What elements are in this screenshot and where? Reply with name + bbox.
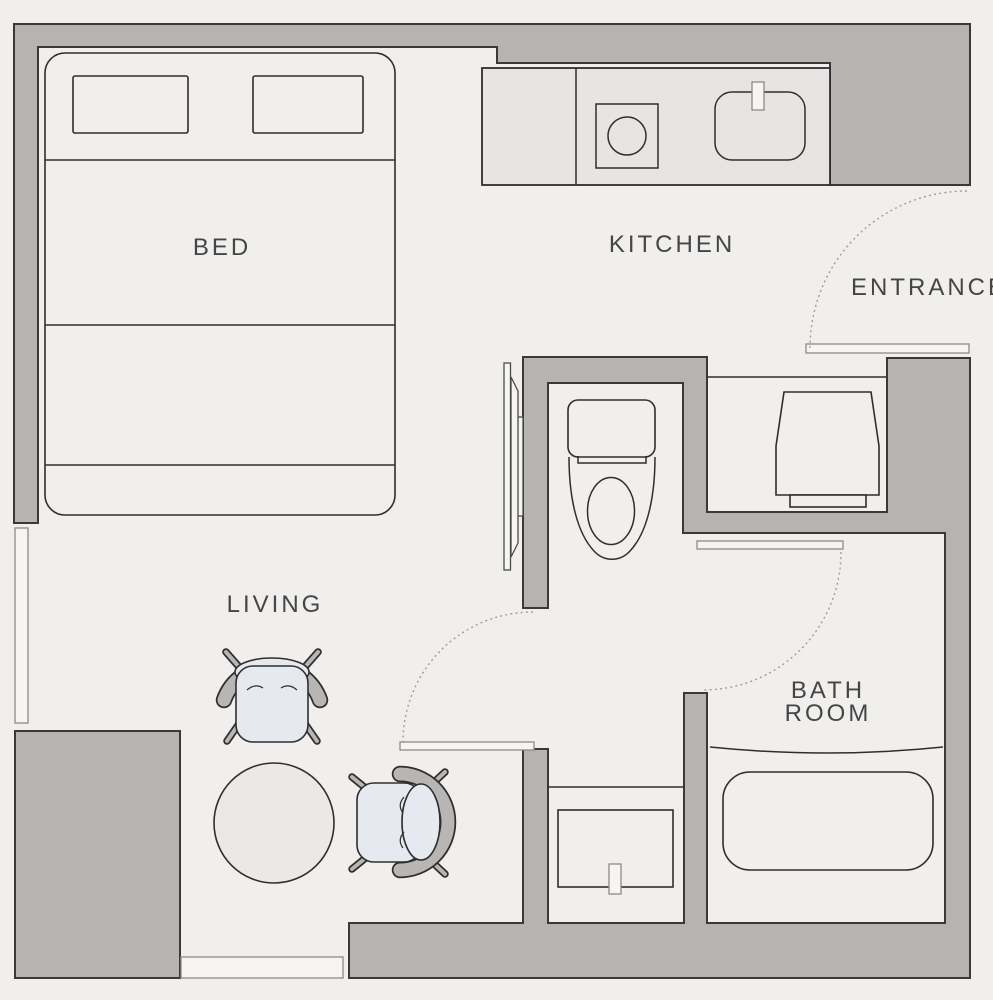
pillow-right xyxy=(253,76,363,133)
bed-group xyxy=(45,53,395,515)
washing-machine-group xyxy=(776,392,879,507)
sink-faucet xyxy=(752,82,764,110)
toilet-tank xyxy=(568,400,655,457)
kitchen-label: KITCHEN xyxy=(609,231,735,258)
washbasin-faucet xyxy=(609,864,621,894)
bathroom-label-line2: ROOM xyxy=(785,700,872,727)
stove-burner xyxy=(608,117,646,155)
sliding-door-panel-rear xyxy=(511,377,518,557)
window-bottom xyxy=(181,957,343,978)
entrance-label: ENTRANCE xyxy=(851,274,993,301)
armchair-top xyxy=(224,652,320,742)
armchair-right xyxy=(352,772,448,874)
living-label: LIVING xyxy=(227,591,324,618)
hall-door-sill xyxy=(400,742,534,750)
armchair-top-seat xyxy=(236,666,308,742)
kitchen-counter-group xyxy=(482,68,830,185)
washing-machine-base xyxy=(790,495,866,507)
sliding-door-panel-front xyxy=(504,363,511,570)
pillow-left xyxy=(73,76,188,133)
bathroom-door-sill xyxy=(697,541,843,549)
window-left xyxy=(15,528,28,723)
round-table xyxy=(214,763,334,883)
floor-plan-svg: BED KITCHEN ENTRANCE LIVING BATH ROOM xyxy=(0,0,993,1000)
entrance-door-sill xyxy=(806,344,969,353)
washbasin-group xyxy=(558,810,673,894)
floor-plan: BED KITCHEN ENTRANCE LIVING BATH ROOM xyxy=(0,0,993,1000)
armchair-right-cushion xyxy=(402,784,440,860)
washing-machine xyxy=(776,392,879,495)
solid-block-bottom-left xyxy=(15,731,180,978)
bed-label: BED xyxy=(193,234,251,261)
bathtub xyxy=(723,772,933,870)
